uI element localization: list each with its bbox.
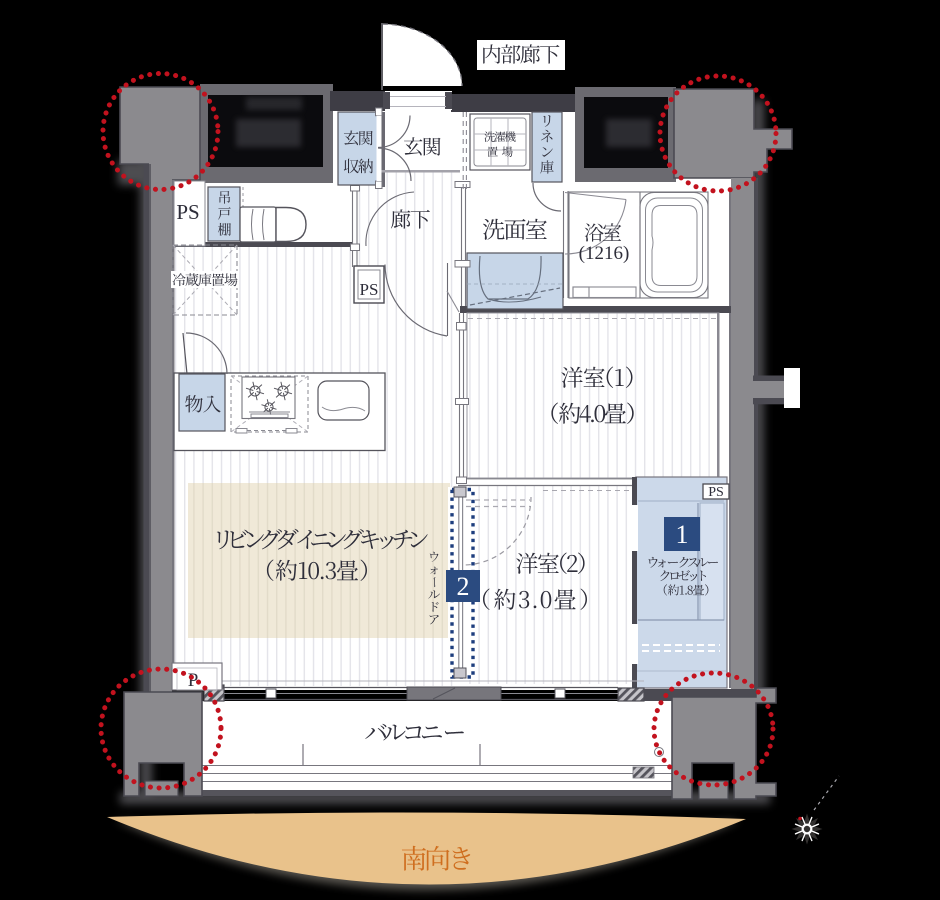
svg-text:(1216): (1216) xyxy=(579,243,630,264)
svg-text:P: P xyxy=(188,670,199,691)
svg-text:2: 2 xyxy=(457,572,470,601)
svg-text:1: 1 xyxy=(676,520,689,549)
svg-text:PS: PS xyxy=(708,485,724,500)
svg-text:PS: PS xyxy=(176,200,199,224)
svg-text:PS: PS xyxy=(360,280,379,299)
